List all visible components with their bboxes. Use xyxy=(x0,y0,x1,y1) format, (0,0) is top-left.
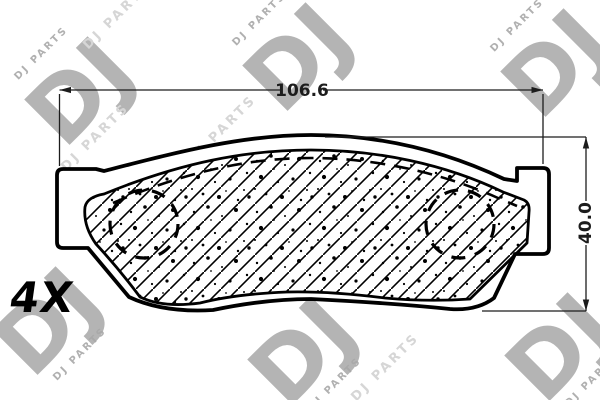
technical-drawing: DJ DJ PARTS DJ DJ PARTS DJ DJ PARTS DJ D… xyxy=(0,0,600,400)
height-dimension-label: 40.0 xyxy=(576,202,596,244)
watermark-logo: DJ DJ PARTS xyxy=(486,274,600,400)
quantity-label: 4X xyxy=(7,273,77,322)
watermark-logo: DJ DJ PARTS xyxy=(476,0,600,137)
width-dimension-label: 106.6 xyxy=(275,81,329,101)
quantity-label-group: 4X xyxy=(7,273,77,322)
watermark-logo: DJ DJ PARTS xyxy=(0,12,153,165)
brake-pad-drawing xyxy=(57,135,549,310)
arrowhead-top-icon xyxy=(583,137,589,149)
dj-logo-icon: DJ xyxy=(482,0,600,137)
watermark-faint-text: DJ PARTS xyxy=(80,0,154,53)
